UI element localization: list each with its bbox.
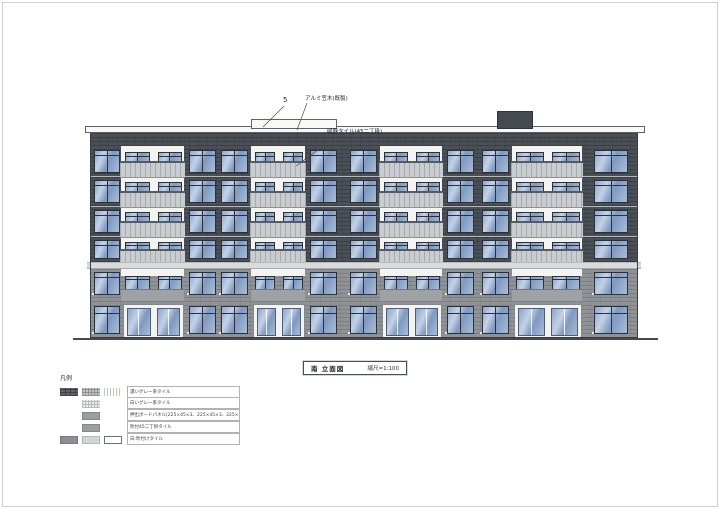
drawing-scale: 縮尺=1:100 [368,364,399,372]
drawing-title: 南 立面図 [311,363,344,373]
annotation-mark: 5 [283,96,287,104]
legend-row: 吹付45二丁掛タイル [60,422,72,434]
raised-parapet-coping [251,119,337,129]
annotation-tile-label: 磁器タイル(45二丁掛) [327,127,382,135]
legend-item-label: 吹付45二丁掛タイル [127,421,240,433]
legend-swatch-hatch-mid [82,388,100,396]
legend-row: 濃いグレー系タイル [60,386,72,398]
legend-rows: 濃いグレー系タイル白いグレー系タイル押出ボードパネル(225×45×3、225×… [60,386,72,446]
legend-row: 白:吹付けタイル [60,434,72,446]
building-outline [90,131,638,338]
legend-swatch-outline [104,436,122,444]
building-elevation [0,0,720,509]
legend-swatch-vlines-light [104,388,122,396]
drawing-sheet: 5 アルミ笠木(既製) 磁器タイル(45二丁掛) 南 立面図 縮尺=1:100 … [0,0,720,509]
legend: 凡例 濃いグレー系タイル白いグレー系タイル押出ボードパネル(225×45×3、2… [60,373,72,446]
legend-item-label: 押出ボードパネル(225×45×3、225×45×3、225×7) [127,409,240,421]
title-block: 南 立面図 縮尺=1:100 [303,361,407,375]
annotation-coping-label: アルミ笠木(既製) [305,94,348,102]
legend-row: 押出ボードパネル(225×45×3、225×45×3、225×7) [60,410,72,422]
legend-header: 凡例 [60,373,72,382]
legend-swatch-grid-light [82,400,100,408]
legend-swatch-solid-gray [60,436,78,444]
legend-swatch-brick-dark [60,388,78,396]
rooftop-penthouse [497,111,533,129]
legend-item-label: 白いグレー系タイル [127,397,240,409]
legend-swatch-solid-mid [82,424,100,432]
legend-swatch-solid-lighter [82,436,100,444]
ground-line [73,338,658,340]
legend-row: 白いグレー系タイル [60,398,72,410]
legend-swatch-solid-mid [82,412,100,420]
legend-item-label: 白:吹付けタイル [127,433,240,445]
